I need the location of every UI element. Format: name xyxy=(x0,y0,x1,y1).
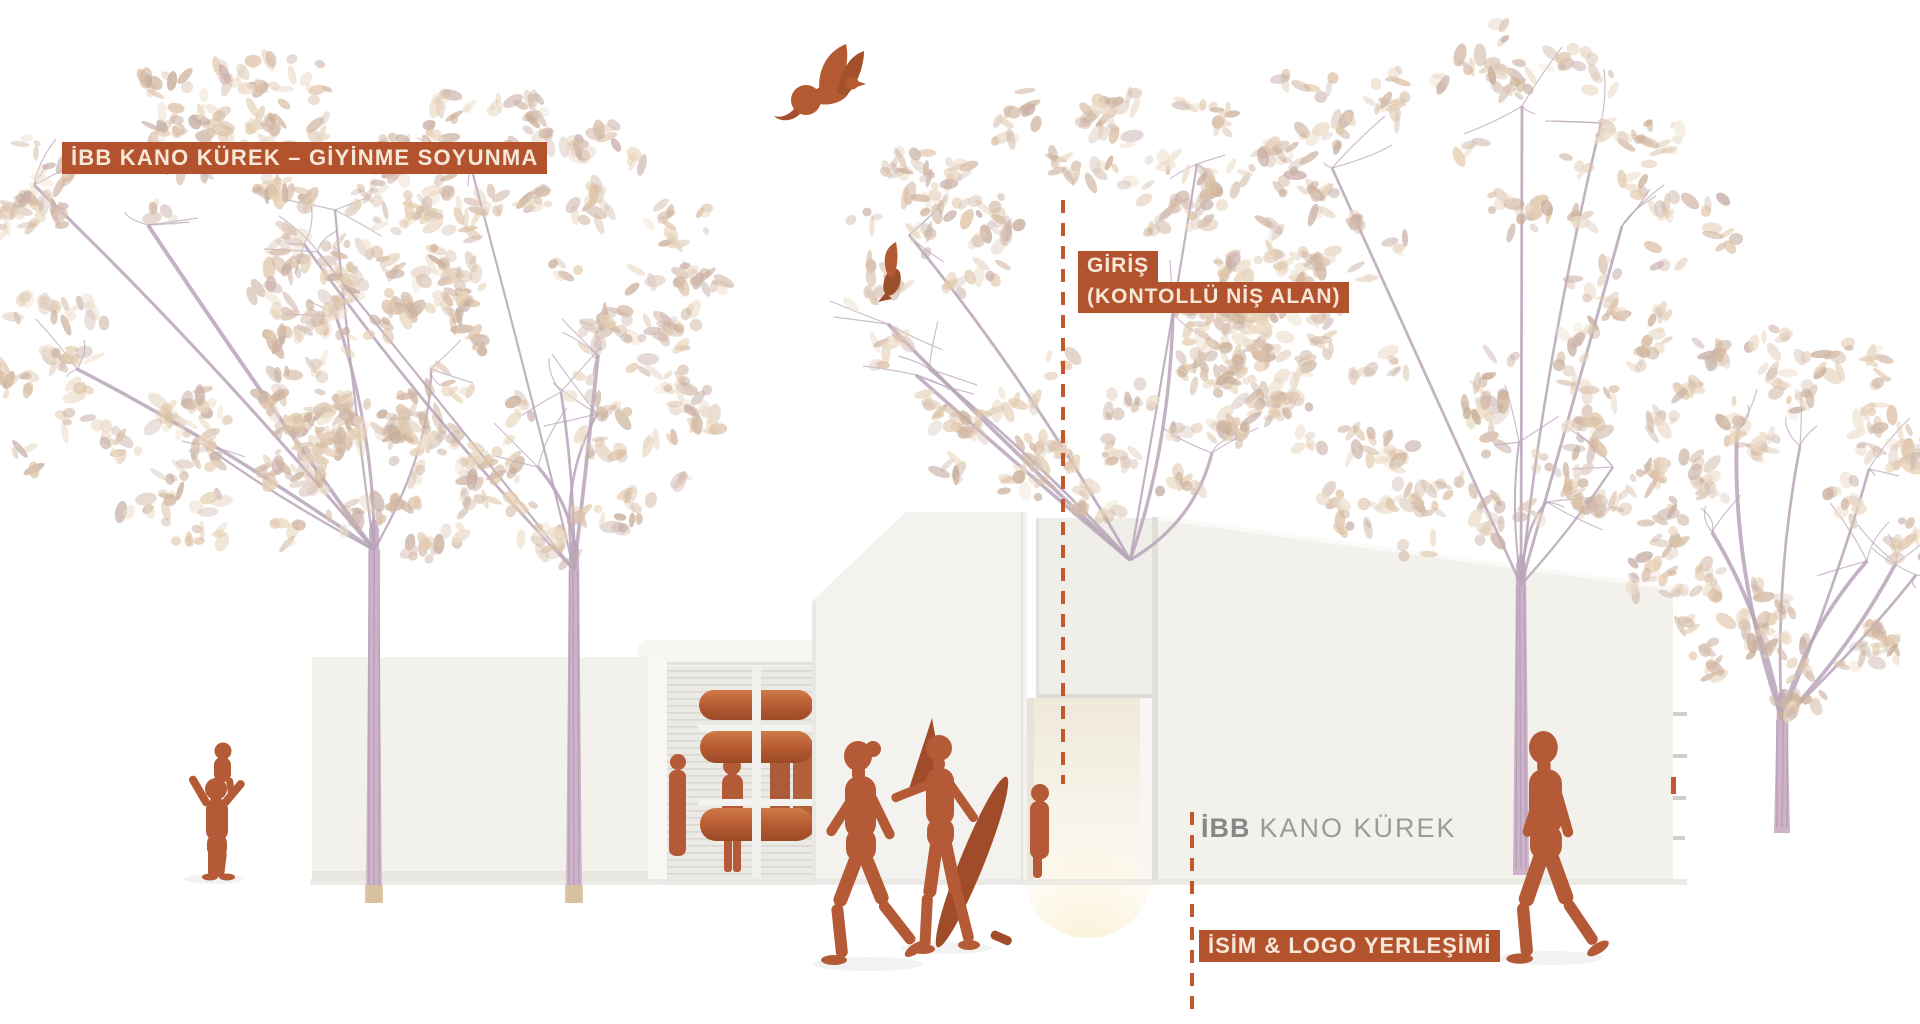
architectural-rendering: İBB KANO KÜREK – GİYİNME SOYUNMA GİRİŞ (… xyxy=(0,0,1920,1024)
annotation-logo-placement-text: İSİM & LOGO YERLEŞİMİ xyxy=(1199,930,1500,962)
edge-stub xyxy=(1673,836,1685,840)
annotation-entrance-line1: GİRİŞ xyxy=(1078,251,1158,282)
left-volume xyxy=(312,657,667,881)
annotation-entrance: GİRİŞ (KONTOLLÜ NİŞ ALAN) xyxy=(1078,251,1349,313)
flying-bird-large-icon xyxy=(774,44,866,120)
mullion xyxy=(1152,517,1158,883)
edge-stub xyxy=(1673,796,1686,800)
ground-shadow xyxy=(310,879,1687,885)
canoe-storage-opening xyxy=(638,640,840,882)
building xyxy=(310,512,1687,938)
building-sign-rest: KANO KÜREK xyxy=(1260,813,1457,843)
edge-stub xyxy=(1673,754,1687,758)
canopy-slab-shadow xyxy=(638,662,840,665)
edge-orange-tick xyxy=(1671,777,1676,794)
rack-post xyxy=(752,664,761,880)
entrance-pilaster xyxy=(1140,698,1152,882)
building-sign-bold: İBB xyxy=(1201,813,1251,843)
annotation-entrance-line2: (KONTOLLÜ NİŞ ALAN) xyxy=(1078,282,1349,313)
building-sign: İBBKANO KÜREK xyxy=(1201,813,1457,844)
figure-parent-child xyxy=(188,743,247,881)
entrance-bay xyxy=(1026,517,1158,938)
edge-stub xyxy=(1673,712,1687,716)
annotation-dressing-rooms-text: İBB KANO KÜREK – GİYİNME SOYUNMA xyxy=(62,142,547,174)
annotation-logo-placement: İSİM & LOGO YERLEŞİMİ xyxy=(1199,930,1500,962)
annotation-dressing-rooms: İBB KANO KÜREK – GİYİNME SOYUNMA xyxy=(62,142,547,174)
